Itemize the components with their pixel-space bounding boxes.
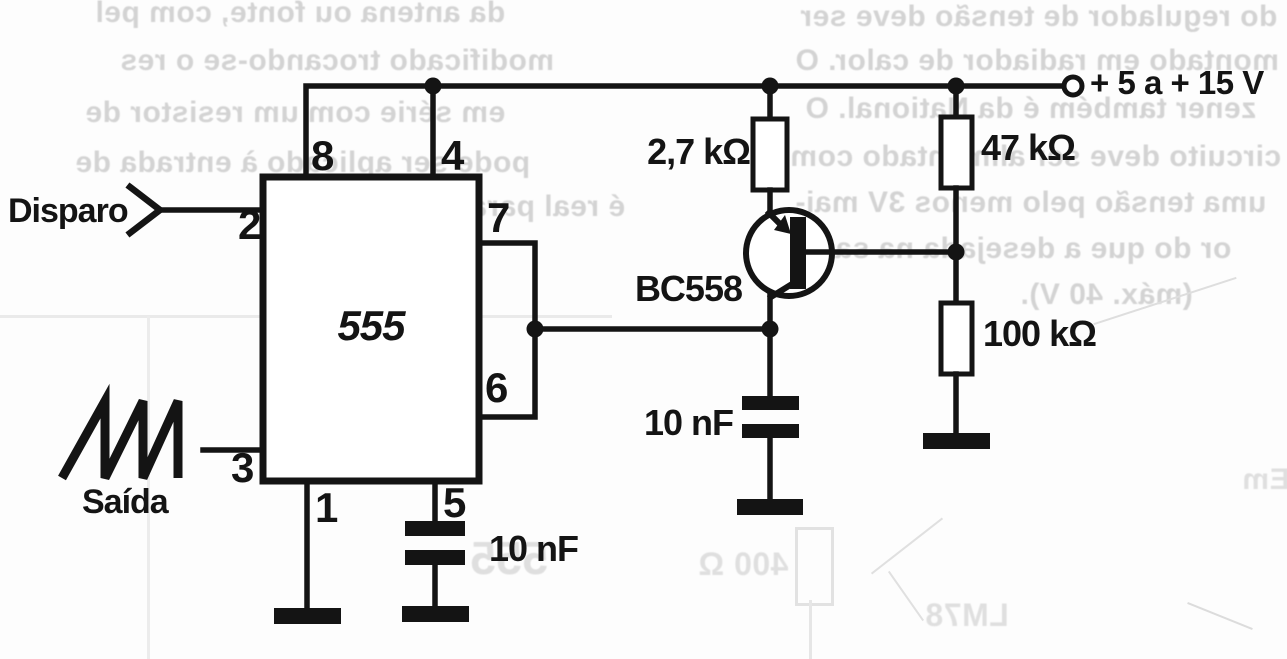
- ground-bar: [274, 608, 341, 624]
- pin-7-label: 7: [487, 194, 510, 242]
- trigger-label: Disparo: [8, 192, 128, 231]
- scanned-schematic-page: da antena ou fonte, com pel modificado t…: [0, 0, 1287, 659]
- supply-voltage-label: + 5 a + 15 V: [1090, 64, 1264, 102]
- pin-4-label: 4: [441, 132, 464, 180]
- pin-6-label: 6: [485, 364, 508, 412]
- resistor-47k-body: [941, 117, 972, 188]
- ic-555-label: 555: [263, 302, 479, 350]
- sawtooth-waveform-icon: [62, 401, 178, 478]
- capacitor-plate: [742, 396, 799, 410]
- pin-3-label: 3: [231, 444, 254, 492]
- ground-bar: [737, 499, 803, 515]
- capacitor-collector-label: 10 nF: [590, 402, 733, 444]
- resistor-2k7-label: 2,7 kΩ: [600, 131, 750, 173]
- resistor-100k-label: 100 kΩ: [983, 313, 1096, 355]
- pin-2-label: 2: [238, 201, 261, 249]
- transistor-label: BC558: [590, 268, 742, 310]
- resistor-47k-label: 47 kΩ: [981, 127, 1075, 169]
- trigger-arrow-icon: [130, 187, 160, 233]
- output-label: Saída: [82, 483, 168, 522]
- ground-bar: [402, 606, 469, 622]
- pin-8-label: 8: [311, 132, 334, 180]
- resistor-2k7-body: [753, 119, 787, 190]
- junction-dot: [425, 78, 442, 95]
- ground-bar: [923, 433, 990, 449]
- vcc-terminal-circle: [1064, 77, 1082, 95]
- capacitor-control-label: 10 nF: [489, 528, 578, 570]
- resistor-100k-body: [941, 303, 972, 374]
- pin-1-label: 1: [315, 484, 338, 532]
- pin-5-label: 5: [443, 479, 466, 527]
